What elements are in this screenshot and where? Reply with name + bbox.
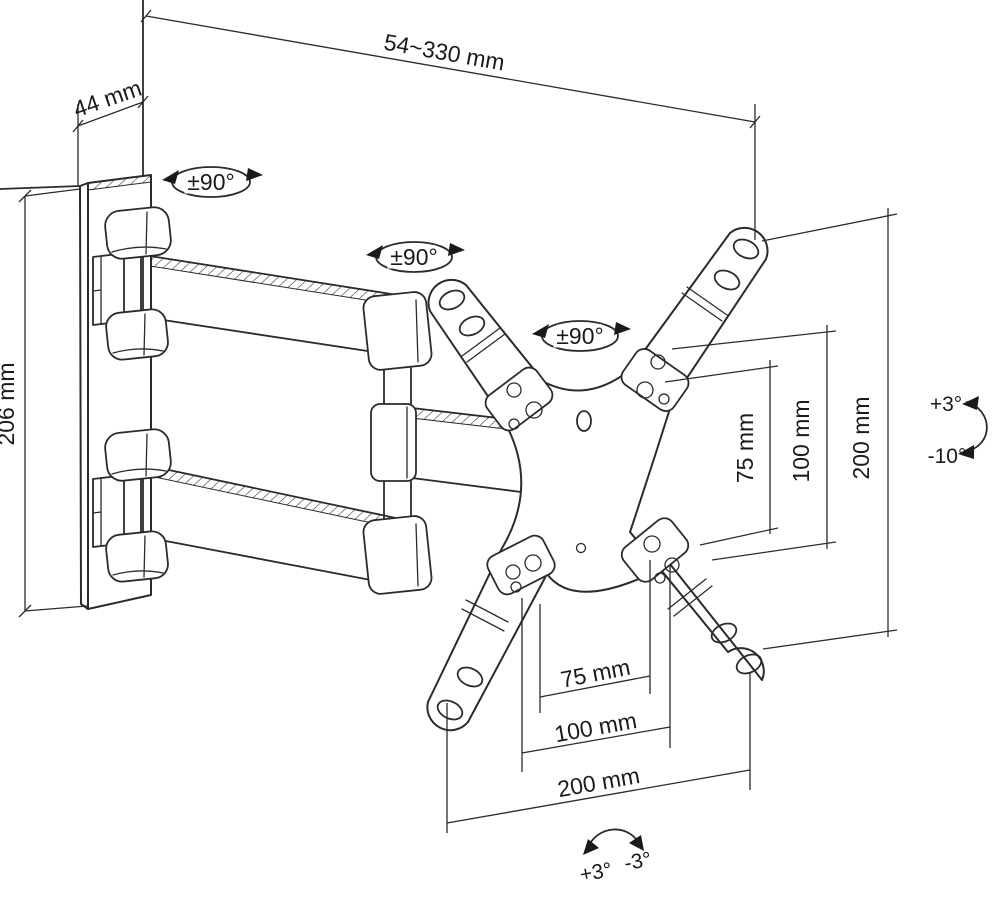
dim-vesa-v100-label: 100 mm (788, 399, 814, 482)
swivel-mid-label: ±90° (390, 244, 437, 270)
dim-vesa-vertical-200: 200 mm (762, 208, 897, 649)
roll-plus-label: +3° (578, 858, 614, 886)
wall-mount-dimension-diagram: 54~330 mm 44 mm 206 mm 75 mm 100 mm 200 … (0, 0, 1000, 897)
swivel-indicator-head: ±90° (532, 321, 631, 351)
dim-plate-height: 206 mm (0, 189, 87, 617)
swivel-wall-label: ±90° (187, 169, 234, 195)
swivel-indicator-mid: ±90° (366, 242, 465, 272)
dim-vesa-h100-label: 100 mm (552, 707, 638, 747)
lower-elbow-joint (362, 515, 432, 595)
diagram-canvas: 54~330 mm 44 mm 206 mm 75 mm 100 mm 200 … (0, 0, 1000, 897)
dim-vesa-v75-label: 75 mm (732, 413, 758, 483)
roll-indicator: +3° -3° (578, 829, 653, 886)
dim-plate-height-label: 206 mm (0, 362, 19, 445)
upper-elbow-joint (362, 291, 432, 371)
tilt-indicator: +3° -10° (928, 393, 987, 468)
swivel-indicator-wall: ±90° (162, 167, 263, 197)
tilt-up-label: +3° (930, 393, 962, 416)
roll-minus-label: -3° (623, 848, 654, 875)
dim-wall-offset: 44 mm (70, 75, 148, 186)
dim-extension-range: 54~330 mm (141, 10, 760, 240)
dim-vesa-horizontal-200: 200 mm (447, 672, 750, 833)
middle-elbow-joint (371, 404, 416, 481)
tilt-down-label: -10° (928, 445, 967, 468)
swivel-head-label: ±90° (556, 323, 603, 349)
dim-vesa-v200-label: 200 mm (848, 396, 874, 479)
